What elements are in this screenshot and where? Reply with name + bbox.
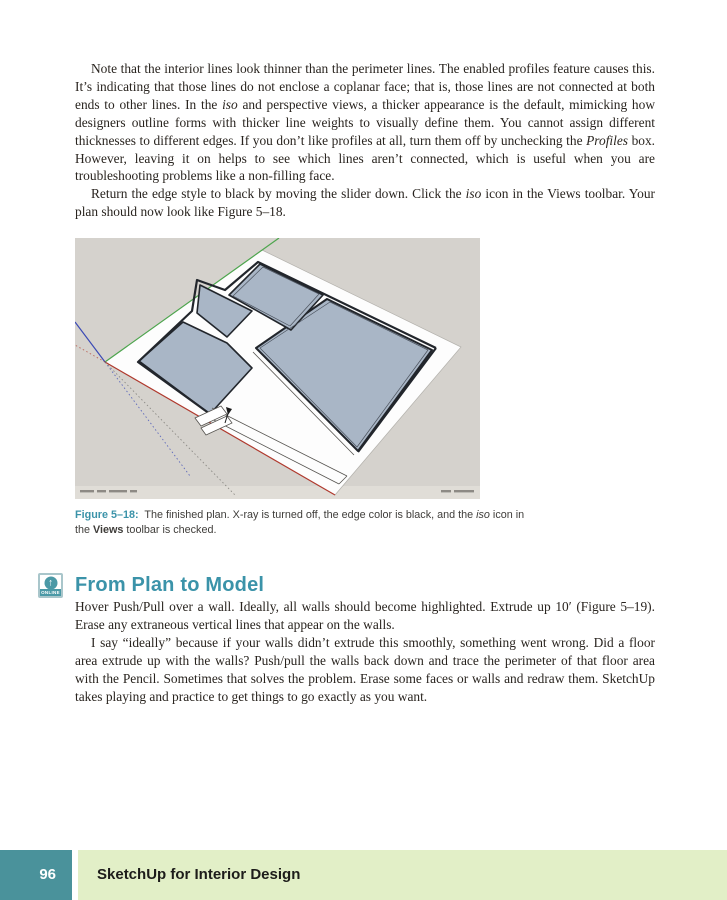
book-page: Note that the interior lines look thinne…	[0, 0, 727, 900]
figure-caption: Figure 5–18: The finished plan. X-ray is…	[75, 508, 527, 537]
running-title: SketchUp for Interior Design	[78, 850, 727, 900]
figure-caption-label: Figure 5–18:	[75, 509, 139, 521]
status-bar	[75, 486, 480, 499]
figure-caption-text: The finished plan. X-ray is turned off, …	[75, 509, 524, 536]
paragraph: Hover Push/Pull over a wall. Ideally, al…	[75, 598, 655, 634]
online-content-icon: ↑ ONLINE	[38, 573, 63, 598]
online-icon-label: ONLINE	[40, 589, 61, 596]
figure-5-18-image	[75, 238, 480, 499]
section-title: From Plan to Model	[75, 574, 264, 597]
section-heading-row: ↑ ONLINE From Plan to Model	[75, 573, 655, 598]
up-arrow-icon: ↑	[44, 577, 57, 590]
paragraph: Return the edge style to black by moving…	[75, 185, 655, 221]
text-block: Note that the interior lines look thinne…	[75, 60, 655, 706]
page-number: 96	[0, 850, 72, 900]
paragraph: Note that the interior lines look thinne…	[75, 60, 655, 185]
page-footer: 96 SketchUp for Interior Design	[0, 850, 727, 900]
paragraph: I say “ideally” because if your walls di…	[75, 634, 655, 706]
